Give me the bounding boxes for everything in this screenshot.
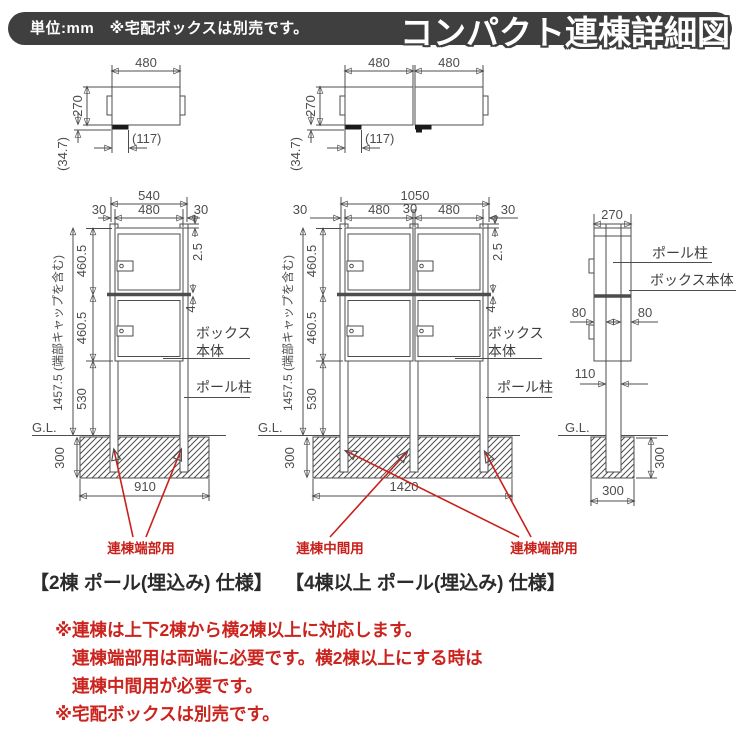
gl-label: G.L. [565,420,590,435]
dim-30-left: 30 [293,202,307,217]
tag-end-unit: 連棟端部用 [510,540,578,556]
dim-34-7: (34.7) [55,137,70,171]
box-top-outline-right [415,87,483,125]
plan-view-double: 480 480 270 (34.7) (117) [288,55,488,171]
dim-300-depth: 300 [282,447,297,469]
dim-total-height: 1457.5 (端部キャップを含む) [50,255,65,411]
box-top-outline-left [345,87,413,125]
dim-460-5-top: 460.5 [304,245,319,278]
pole-stub [416,130,422,133]
gl-label: G.L. [258,420,283,435]
tag-mid-unit: 連棟中間用 [296,540,364,556]
footnote-line: 連棟端部用は両端に必要です。横2棟以上にする時は [55,644,483,672]
pole-bracket-mid [415,125,432,130]
handle-bump-lower [589,325,594,339]
dim-910: 910 [134,479,156,494]
front-view-four-unit: 1050 30 480 30 480 30 2.5 4 460.5 [258,188,578,594]
dim-4: 4 [183,305,198,312]
foundation [80,437,209,478]
right-tab [180,96,185,115]
dim-117: (117) [365,131,394,146]
box-body-label-line1: ボックス [196,325,252,341]
left-tab [107,96,112,115]
gl-label: G.L. [32,420,57,435]
dim-460-5-top: 460.5 [74,245,89,278]
box-body-label-line2: 本体 [196,343,224,359]
dim-540: 540 [138,188,160,203]
dim-480: 480 [138,202,160,217]
dim-480-right: 480 [438,55,460,70]
pole-bracket-left [345,125,362,130]
footnote-line: ※宅配ボックスは別売です。 [55,700,483,728]
pole-label: ポール柱 [196,379,252,395]
dim-480-left: 480 [368,202,390,217]
dim-2-5: 2.5 [490,243,505,261]
pole-label: ポール柱 [497,379,553,395]
dim-270: 270 [601,207,623,222]
tag-end-unit: 連棟端部用 [107,540,175,556]
dim-530: 530 [304,388,319,410]
handle-bump-upper [589,259,594,273]
box-body-label: ボックス本体 [650,272,734,288]
dim-80-left: 80 [572,305,586,320]
left-tab [340,96,345,115]
box-body-label-line2: 本体 [488,343,516,359]
box-top-outline [112,87,180,125]
front-view-two-unit: 540 30 480 30 2.5 4 460.5 460.5 530 [30,188,273,594]
dim-30-mid: 30 [403,201,417,216]
caption-two-unit: 【2棟 ポール(埋込み) 仕様】 [30,571,273,594]
dim-110: 110 [575,366,596,381]
dim-460-5-bottom: 460.5 [74,312,89,345]
dim-30-right: 30 [194,202,208,217]
dim-80-right: 80 [638,305,652,320]
caption-four-unit: 【4棟以上 ポール(埋込み) 仕様】 [285,571,566,594]
box-body-label-line1: ボックス [488,325,544,341]
dim-117: (117) [132,131,161,146]
dim-30-right: 30 [501,202,515,217]
dim-480-right: 480 [438,202,460,217]
dim-300-depth: 300 [652,447,667,469]
footnotes: ※連棟は上下2棟から横2棟以上に対応します。 連棟端部用は両端に必要です。横2棟… [55,616,483,728]
dim-300-depth: 300 [52,447,67,469]
side-view: 270 ポール柱 ボックス本体 80 80 110 G.L. 300 300 [558,207,736,506]
dim-1420: 1420 [390,479,419,494]
dim-530: 530 [74,388,89,410]
dim-34-7: (34.7) [288,137,303,171]
dim-total-height: 1457.5 (端部キャップを含む) [280,255,295,411]
dim-30-left: 30 [92,202,106,217]
pole-label: ポール柱 [652,245,708,261]
dim-300-width: 300 [602,483,624,498]
pole-bracket [112,125,129,130]
dim-480: 480 [135,55,157,70]
dim-460-5-bottom: 460.5 [304,312,319,345]
footnote-line: ※連棟は上下2棟から横2棟以上に対応します。 [55,616,483,644]
right-tab [483,96,488,115]
plan-view-single: 480 270 (34.7) (117) [55,55,185,171]
dim-2-5: 2.5 [190,243,205,261]
footnote-line: 連棟中間用が必要です。 [55,672,483,700]
diagram-page: 単位:mm ※宅配ボックスは別売です。 コンパクト連棟詳細図 480 2 [0,0,740,740]
dim-480-left: 480 [368,55,390,70]
dim-4: 4 [483,305,498,312]
